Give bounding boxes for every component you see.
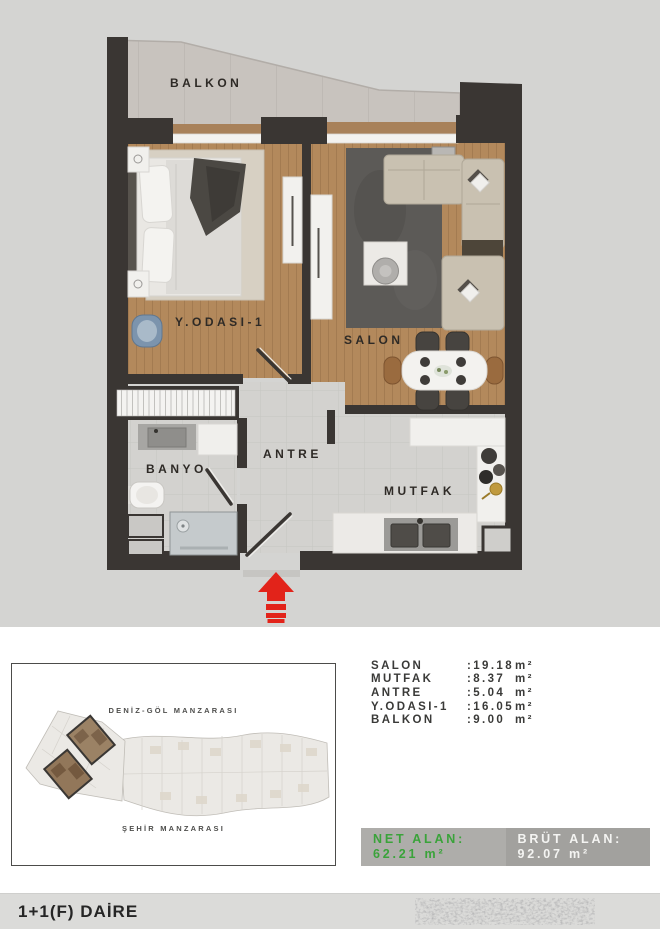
nightstand-bottom: [128, 271, 149, 297]
net-area-box: NET ALAN: 62.21 m²: [361, 828, 506, 866]
area-row: Y.ODASI-1:16.05m²: [371, 700, 534, 714]
sea-lake-view-label: DENİZ-GÖL MANZARASI: [109, 706, 239, 715]
area-unit: m²: [515, 687, 534, 699]
plan-section: BALKON Y.ODASI-1 SALON ANTRE BANYO MUTFA…: [0, 0, 660, 627]
signature-scribble: [415, 898, 595, 925]
net-area-value: 62.21 m²: [373, 847, 506, 862]
area-row: ANTRE:5.04m²: [371, 686, 534, 700]
blue-armchair: [132, 315, 162, 347]
info-section: DENİZ-GÖL MANZARASI ŞEHİR MANZARASI SALO…: [0, 627, 660, 893]
bath-shaft-1: [128, 515, 163, 537]
area-value: :19.18: [467, 660, 515, 672]
building-outline: [120, 733, 329, 816]
footer-bar: 1+1(F) DAİRE: [0, 893, 660, 929]
label-bedroom: Y.ODASI-1: [175, 315, 265, 329]
area-label: Y.ODASI-1: [371, 701, 467, 713]
bath-cabinet: [198, 424, 237, 455]
gross-area-value: 92.07 m²: [518, 847, 651, 862]
entry-threshold: [243, 570, 300, 577]
label-balkon: BALKON: [170, 76, 242, 90]
area-value: :16.05: [467, 701, 515, 713]
area-summary-band: NET ALAN: 62.21 m² BRÜT ALAN: 92.07 m²: [361, 828, 650, 866]
area-row: MUTFAK:8.37m²: [371, 673, 534, 687]
area-label: SALON: [371, 660, 467, 672]
antre-passage: [302, 382, 345, 412]
sitemap-box: DENİZ-GÖL MANZARASI ŞEHİR MANZARASI: [11, 663, 336, 866]
toilet: [128, 482, 164, 508]
faucet: [417, 518, 423, 524]
label-mutfak: MUTFAK: [384, 484, 455, 498]
area-unit: m²: [515, 701, 534, 713]
area-value: :5.04: [467, 687, 515, 699]
label-banyo: BANYO: [146, 462, 207, 476]
label-antre: ANTRE: [263, 447, 322, 461]
area-value: :8.37: [467, 673, 515, 685]
shower: [170, 512, 237, 555]
city-view-label: ŞEHİR MANZARASI: [122, 824, 225, 833]
area-value: :9.00: [467, 714, 515, 726]
floorplan-drawing: [0, 0, 660, 627]
area-label: MUTFAK: [371, 673, 467, 685]
gross-area-box: BRÜT ALAN: 92.07 m²: [506, 828, 651, 866]
area-list: SALON:19.18m² MUTFAK:8.37m² ANTRE:5.04m²…: [371, 659, 534, 727]
nightstand-top: [128, 147, 149, 172]
label-salon: SALON: [344, 333, 404, 347]
area-row: SALON:19.18m²: [371, 659, 534, 673]
coffee-table: [364, 242, 407, 285]
apartment-type-title: 1+1(F) DAİRE: [18, 902, 138, 922]
floorplan-sheet: BALKON Y.ODASI-1 SALON ANTRE BANYO MUTFA…: [0, 0, 660, 933]
gross-area-label: BRÜT ALAN:: [518, 832, 651, 847]
bath-shaft-2: [128, 540, 163, 555]
area-unit: m²: [515, 714, 534, 726]
shaft: [483, 527, 512, 553]
area-unit: m²: [515, 673, 534, 685]
net-area-label: NET ALAN:: [373, 832, 506, 847]
area-label: ANTRE: [371, 687, 467, 699]
area-row: BALKON:9.00m²: [371, 713, 534, 727]
area-label: BALKON: [371, 714, 467, 726]
built-in-wardrobe: [113, 386, 239, 420]
area-unit: m²: [515, 660, 534, 672]
